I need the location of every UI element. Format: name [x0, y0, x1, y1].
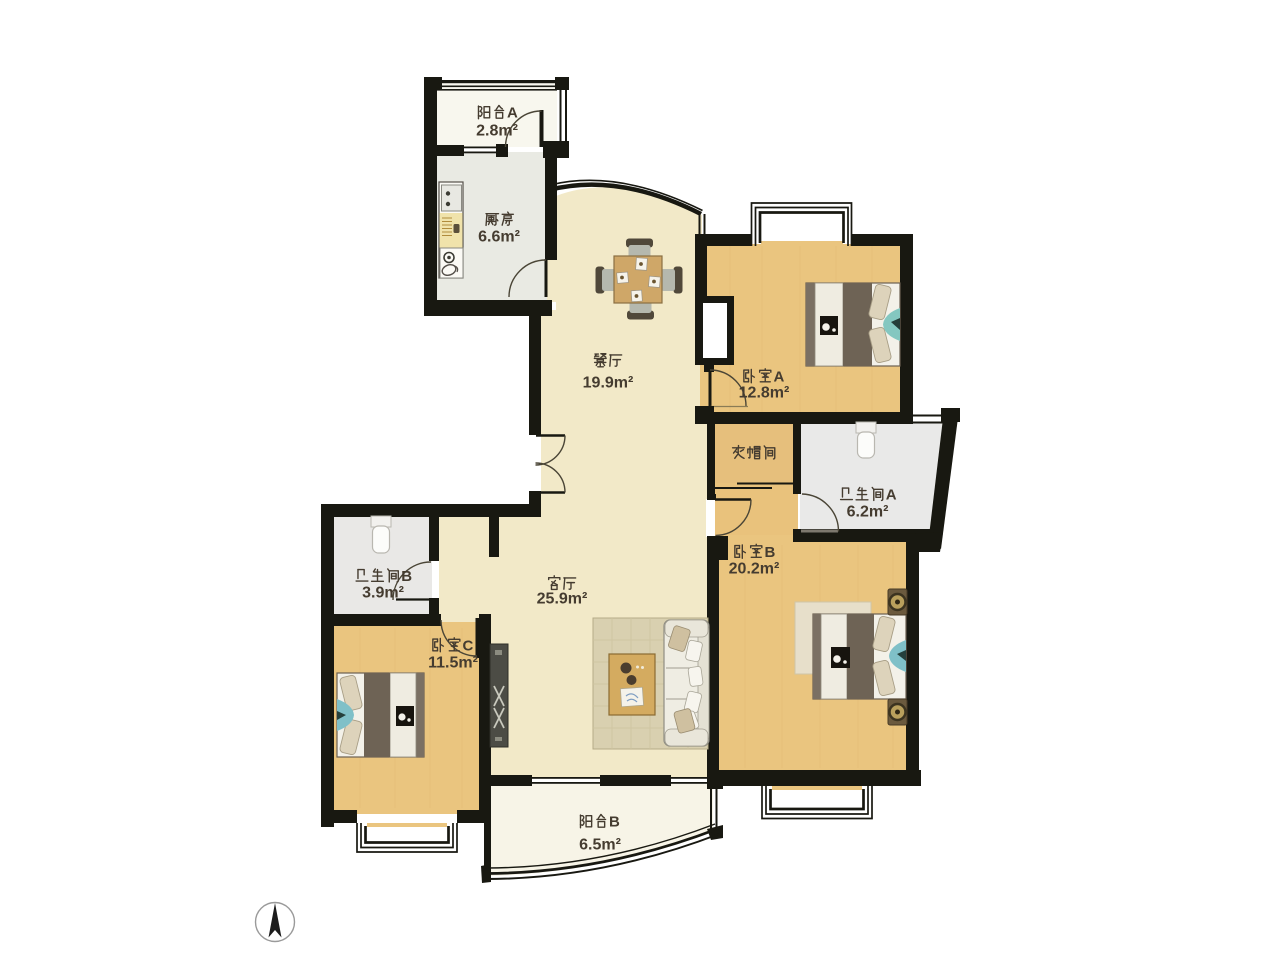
svg-text:B: B — [401, 568, 412, 585]
svg-text:A: A — [507, 105, 518, 122]
svg-text:3.9m²: 3.9m² — [362, 585, 404, 602]
svg-text:C: C — [463, 638, 474, 655]
svg-text:6.5m²: 6.5m² — [579, 837, 621, 854]
svg-text:B: B — [609, 814, 620, 831]
svg-text:2.8m²: 2.8m² — [476, 123, 518, 140]
svg-text:6.2m²: 6.2m² — [847, 504, 889, 521]
svg-text:6.6m²: 6.6m² — [478, 229, 520, 246]
svg-text:A: A — [774, 369, 785, 386]
svg-text:11.5m²: 11.5m² — [428, 655, 478, 672]
svg-text:A: A — [886, 487, 897, 504]
svg-text:20.2m²: 20.2m² — [729, 561, 780, 578]
svg-text:B: B — [765, 544, 776, 561]
svg-text:19.9m²: 19.9m² — [583, 375, 634, 392]
svg-text:25.9m²: 25.9m² — [537, 591, 588, 608]
svg-text:12.8m²: 12.8m² — [739, 385, 790, 402]
